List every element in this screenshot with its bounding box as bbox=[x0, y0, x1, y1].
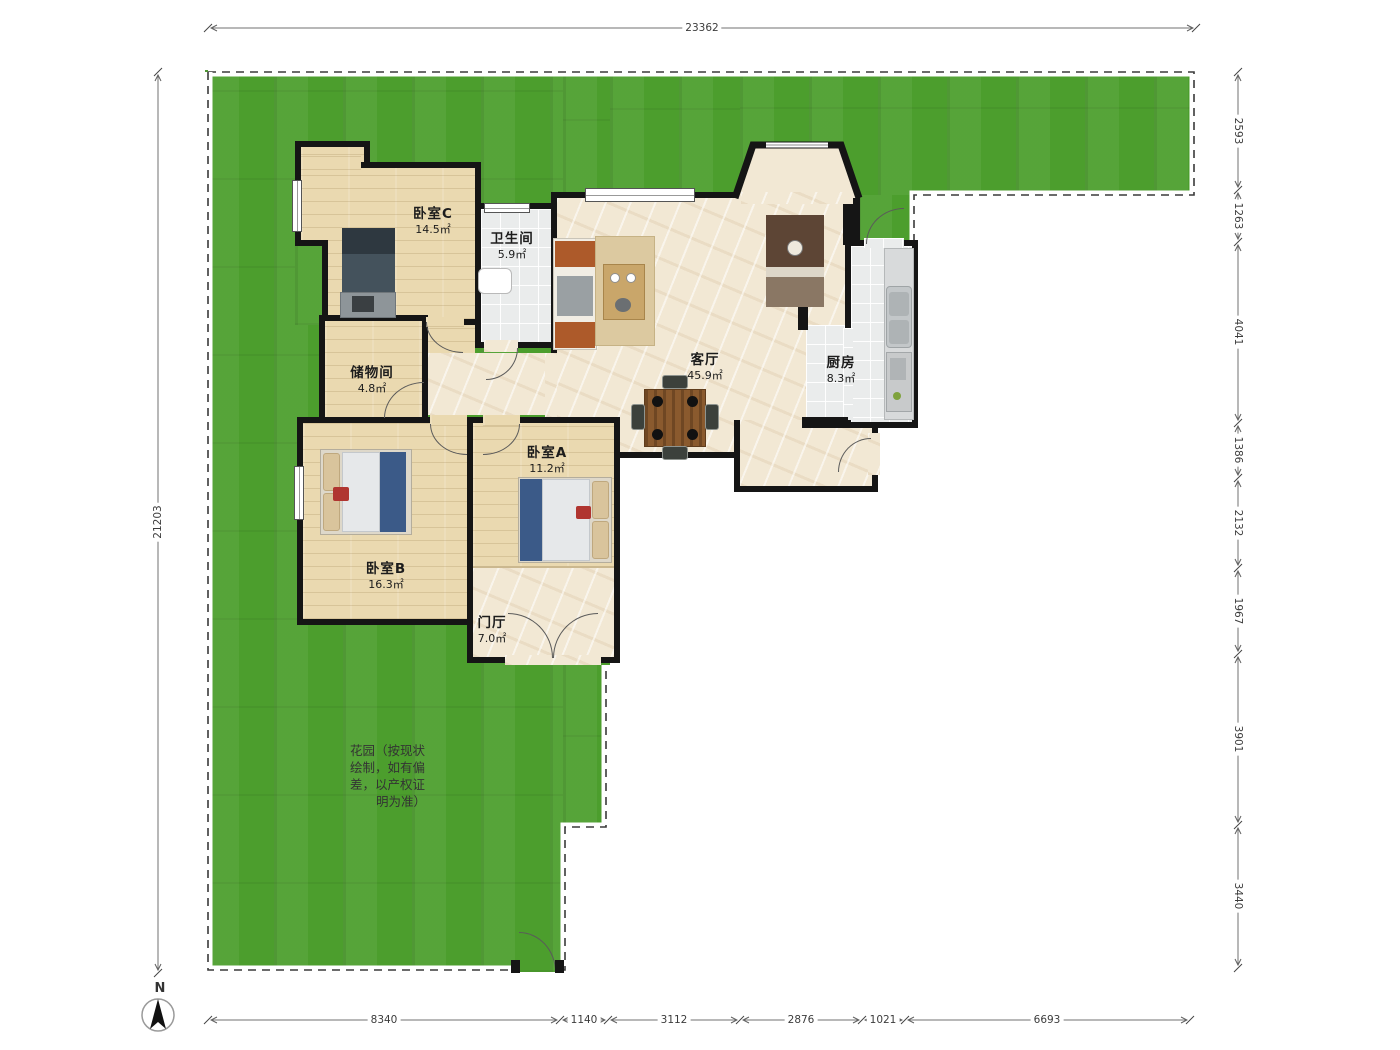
dim-top-total: 23362 bbox=[682, 22, 721, 34]
dim-bottom-6: 6693 bbox=[1031, 1014, 1064, 1026]
dim-right-3: 4041 bbox=[1232, 316, 1244, 349]
dim-bottom-3: 3112 bbox=[658, 1014, 691, 1026]
dim-right-2: 1263 bbox=[1232, 200, 1244, 233]
dim-right-4: 1386 bbox=[1232, 434, 1244, 467]
dim-right-7: 3901 bbox=[1232, 723, 1244, 756]
dim-right-6: 1967 bbox=[1232, 595, 1244, 628]
dim-right-5: 2132 bbox=[1232, 507, 1244, 540]
dim-bottom-1: 8340 bbox=[368, 1014, 401, 1026]
dim-right-8: 3440 bbox=[1232, 880, 1244, 913]
dim-bottom-5: 1021 bbox=[867, 1014, 900, 1026]
dimension-lines bbox=[0, 0, 1400, 1050]
dim-bottom-2: 1140 bbox=[568, 1014, 601, 1026]
dim-right-1: 2593 bbox=[1232, 115, 1244, 148]
dim-bottom-4: 2876 bbox=[785, 1014, 818, 1026]
dim-left-total: 21203 bbox=[152, 502, 164, 541]
north-label: N bbox=[150, 981, 170, 996]
floor-plan-canvas: 卧室C14.5㎡ 卫生间5.9㎡ 储物间4.8㎡ 卧室B16.3㎡ 卧室A11.… bbox=[0, 0, 1400, 1050]
